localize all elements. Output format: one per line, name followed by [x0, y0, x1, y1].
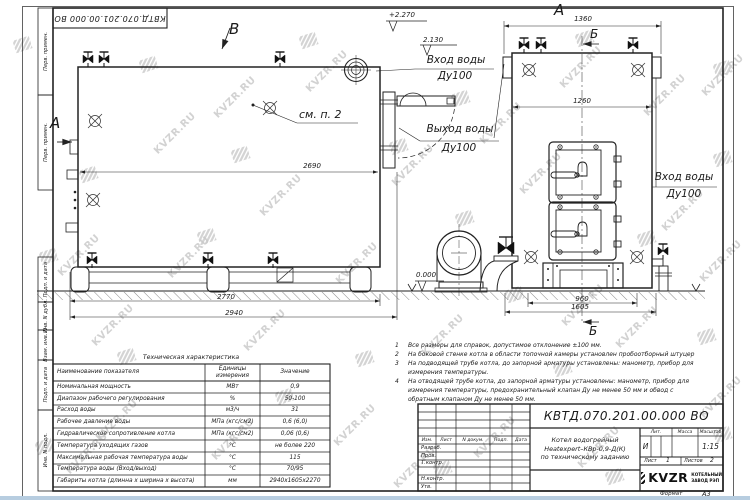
- bottom-strip: [0, 496, 750, 500]
- tb-row-utv: Утв.: [421, 484, 432, 490]
- top-stamp: КВТД.070.201.00.000 ВО: [53, 8, 167, 28]
- watermark-text: KVZR.RU: [304, 48, 350, 94]
- tb-row-prov: Пров.: [421, 453, 436, 459]
- tb-row-nkontr: Н.контр.: [421, 476, 444, 482]
- tech-table-header-name: Наименование показателя: [53, 364, 205, 381]
- table-row: Рабочее давление водыМПа (кгс/см2)0,6 (6…: [53, 416, 330, 428]
- watermark-text: KVZR.RU: [558, 44, 604, 90]
- titleblock-designation: КВТД.070.201.00.000 ВО: [531, 406, 722, 425]
- cell-value: 0,9: [260, 381, 330, 393]
- table-row: Габариты котла (длинна х ширина х высота…: [53, 475, 330, 487]
- cell-value: 0,06 (0,6): [260, 428, 330, 440]
- tech-table-header-unit: Единицы измерения: [205, 364, 260, 381]
- margin-label: Подп. и дата: [43, 367, 49, 402]
- margin-box-perv-primen-1: Перв. примен.: [38, 8, 53, 95]
- dim-base-width: 1605: [571, 303, 589, 311]
- tech-table-header: Наименование показателя Единицы измерени…: [53, 364, 330, 381]
- tb-mass-label: Масса: [672, 429, 698, 436]
- margin-box-vzam-inv: Взам. инв. N: [38, 330, 53, 360]
- elevation-ground: 0.000: [416, 271, 436, 279]
- cell-name: Рабочее давление воды: [53, 416, 205, 428]
- table-row: Температура уходящих газов°Сне более 220: [53, 440, 330, 452]
- tb-sheets-value: 2: [710, 457, 714, 464]
- watermark-text: KVZR.RU: [242, 307, 288, 353]
- watermark-logo-icon: [450, 90, 470, 108]
- watermark-text: KVZR.RU: [700, 52, 746, 98]
- cell-unit: мм: [205, 475, 260, 487]
- dim-skid-width: 960: [575, 295, 588, 303]
- cell-unit: МВт: [205, 381, 260, 393]
- note-text: На подводящей трубе котла, до запорной а…: [408, 359, 705, 377]
- inlet-top-label: Вход воды: [427, 54, 486, 66]
- note-number: 4: [395, 377, 408, 404]
- company-logo: KVZR КОТЕЛЬНЫЙ ЗАВОД РЭП: [641, 466, 722, 489]
- company-name-line2: ЗАВОД РЭП: [691, 478, 722, 483]
- product-name-line1: Котел водогрейный: [551, 436, 618, 445]
- watermark-text: KVZR.RU: [56, 232, 102, 278]
- tb-sheet-label: Лист: [644, 458, 657, 464]
- tb-sheet-value: 1: [666, 457, 670, 464]
- see-note-label: см. п. 2: [299, 108, 342, 121]
- cell-name: Габариты котла (длинна х ширина х высота…: [53, 475, 205, 487]
- watermark-text: KVZR.RU: [642, 72, 688, 118]
- watermark-text: KVZR.RU: [258, 172, 304, 218]
- watermark-text: KVZR.RU: [698, 238, 744, 284]
- table-row: Температура воды (Вход/выход)°С70/95: [53, 464, 330, 475]
- watermark-logo-icon: [504, 286, 524, 304]
- company-name: КОТЕЛЬНЫЙ ЗАВОД РЭП: [691, 472, 722, 483]
- note-number: 1: [395, 341, 408, 350]
- cell-name: Расход воды: [53, 405, 205, 416]
- cell-value: не более 220: [260, 440, 330, 452]
- margin-label: Подп. и дата: [43, 262, 49, 297]
- note-item: 4На отводящей трубе котла, до запорной а…: [395, 377, 705, 404]
- product-name-line2: Heatexpert–КВр-0,9-Д(К): [544, 445, 625, 454]
- table-row: Гидравлическое сопротивление котлаМПа (к…: [53, 428, 330, 440]
- cell-value: 50-100: [260, 393, 330, 405]
- table-row: Номинальная мощностьМВт0,9: [53, 381, 330, 393]
- cell-value: 0,6 (6,0): [260, 416, 330, 428]
- elevation-top: +2.270: [389, 11, 415, 19]
- top-stamp-designation: КВТД.070.201.00.000 ВО: [54, 14, 166, 23]
- tb-header-doc: N докум.: [456, 437, 490, 444]
- dim-total-width: 1360: [574, 15, 592, 23]
- cell-name: Номинальная мощность: [53, 381, 205, 393]
- watermark-logo-icon: [454, 210, 474, 228]
- inlet-top-dn: Ду100: [438, 70, 472, 82]
- cell-value: 70/95: [260, 464, 330, 475]
- note-item: 1Все размеры для справок, допустимое отк…: [395, 341, 705, 350]
- table-row: Максимальная рабочая температура воды°С1…: [53, 452, 330, 464]
- margin-box-podp-data-1: Подп. и дата: [38, 257, 53, 302]
- inlet-right-dn: Ду100: [667, 188, 701, 200]
- view-label-v: В: [229, 20, 239, 38]
- inlet-right-label: Вход воды: [655, 171, 714, 183]
- note-item: 3На подводящей трубе котла, до запорной …: [395, 359, 705, 377]
- margin-label: Перв. примен.: [43, 123, 49, 162]
- dim-skid-length: 2770: [217, 293, 235, 301]
- watermark-text: KVZR.RU: [152, 110, 198, 156]
- margin-box-inv-podl: Инв. N подл.: [38, 410, 53, 491]
- tb-header-data: Дата: [512, 437, 530, 444]
- cell-unit: °С: [205, 452, 260, 464]
- cell-unit: %: [205, 393, 260, 405]
- kvzr-logo-icon: [641, 472, 645, 484]
- cell-name: Температура уходящих газов: [53, 440, 205, 452]
- tb-header-list: Лист: [436, 437, 456, 444]
- cell-unit: м3/ч: [205, 405, 260, 416]
- watermark-logo-icon: [116, 348, 136, 366]
- watermark-text: KVZR.RU: [334, 240, 380, 286]
- tb-header-podp: Подп.: [490, 437, 512, 444]
- watermark-text: KVZR.RU: [518, 150, 564, 196]
- dim-total-length: 2940: [225, 309, 243, 317]
- watermark-logo-icon: [78, 166, 98, 184]
- cell-name: Гидравлическое сопротивление котла: [53, 428, 205, 440]
- tb-scale-value: 1:15: [698, 440, 723, 453]
- note-number: 2: [395, 350, 408, 359]
- watermark-logo-icon: [388, 138, 408, 156]
- tb-lit-value: И: [640, 440, 651, 452]
- cell-value: 2940х1605х2270: [260, 475, 330, 487]
- watermark-logo-icon: [230, 146, 250, 164]
- cell-unit: °С: [205, 464, 260, 475]
- cell-unit: МПа (кгс/см2): [205, 428, 260, 440]
- cell-name: Диапазон рабочего регулирования: [53, 393, 205, 405]
- section-label-b-bottom: Б: [589, 324, 597, 338]
- note-text: На боковой стенке котла в области топочн…: [408, 350, 705, 359]
- kvzr-logo-text: KVZR: [648, 470, 688, 485]
- watermark-logo-icon: [354, 350, 374, 368]
- watermark-logo-icon: [196, 228, 216, 246]
- outlet-label: Выход воды: [427, 123, 494, 135]
- watermark-logo-icon: [712, 150, 732, 168]
- tb-row-tkontr: Т.контр.: [421, 460, 443, 466]
- notes-list: 1Все размеры для справок, допустимое отк…: [395, 341, 705, 404]
- margin-box-perv-primen-2: Перв. примен.: [38, 95, 53, 190]
- cell-unit: МПа (кгс/см2): [205, 416, 260, 428]
- tb-row-razrab: Разраб.: [421, 445, 441, 451]
- tb-sheets-label: Листов: [684, 458, 703, 464]
- margin-box-podp-data-2: Подп. и дата: [38, 360, 53, 410]
- cell-unit: °С: [205, 440, 260, 452]
- table-row: Расход водым3/ч31: [53, 405, 330, 416]
- margin-label: Взам. инв. N: [43, 328, 49, 362]
- note-number: 3: [395, 359, 408, 377]
- watermark-logo-icon: [636, 230, 656, 248]
- note-item: 2На боковой стенке котла в области топоч…: [395, 350, 705, 359]
- note-text: Все размеры для справок, допустимое откл…: [408, 341, 705, 350]
- margin-label: Перв. примен.: [43, 32, 49, 71]
- cell-value: 115: [260, 452, 330, 464]
- outlet-dn: Ду100: [442, 142, 476, 154]
- watermark-text: KVZR.RU: [90, 302, 136, 348]
- cell-value: 31: [260, 405, 330, 416]
- tb-header-izm: Изм.: [418, 437, 436, 444]
- view-label-a-side: А: [50, 114, 60, 132]
- table-row: Диапазон рабочего регулирования%50-100: [53, 393, 330, 405]
- watermark-logo-icon: [298, 32, 318, 50]
- product-name-line3: по техническому заданию: [541, 453, 630, 462]
- cell-name: Максимальная рабочая температура воды: [53, 452, 205, 464]
- watermark-logo-icon: [604, 468, 624, 486]
- watermark-logo-icon: [12, 36, 32, 54]
- elevation-mid: 2.130: [423, 36, 443, 44]
- titleblock-product-name: Котел водогрейный Heatexpert–КВр-0,9-Д(К…: [531, 430, 639, 468]
- tb-lit-label: Лит.: [640, 429, 672, 436]
- watermark-text: KVZR.RU: [212, 74, 258, 120]
- cell-name: Температура воды (Вход/выход): [53, 464, 205, 475]
- dim-body-width: 1260: [573, 97, 591, 105]
- note-text: На отводящей трубе котла, до запорной ар…: [408, 377, 705, 404]
- watermark-logo-icon: [138, 56, 158, 74]
- tech-table-title: Техническая характеристика: [143, 354, 239, 361]
- dim-body-length: 2690: [303, 162, 321, 170]
- tb-scale-label: Масштаб: [698, 429, 723, 436]
- view-label-a-front: А: [554, 1, 564, 19]
- tech-table-header-value: Значение: [260, 364, 330, 381]
- watermark-text: KVZR.RU: [332, 402, 378, 448]
- margin-box-inv-dubl: Инв. N дубл.: [38, 302, 53, 330]
- margin-label: Инв. N подл.: [43, 433, 49, 467]
- section-label-b-top: Б: [590, 27, 598, 41]
